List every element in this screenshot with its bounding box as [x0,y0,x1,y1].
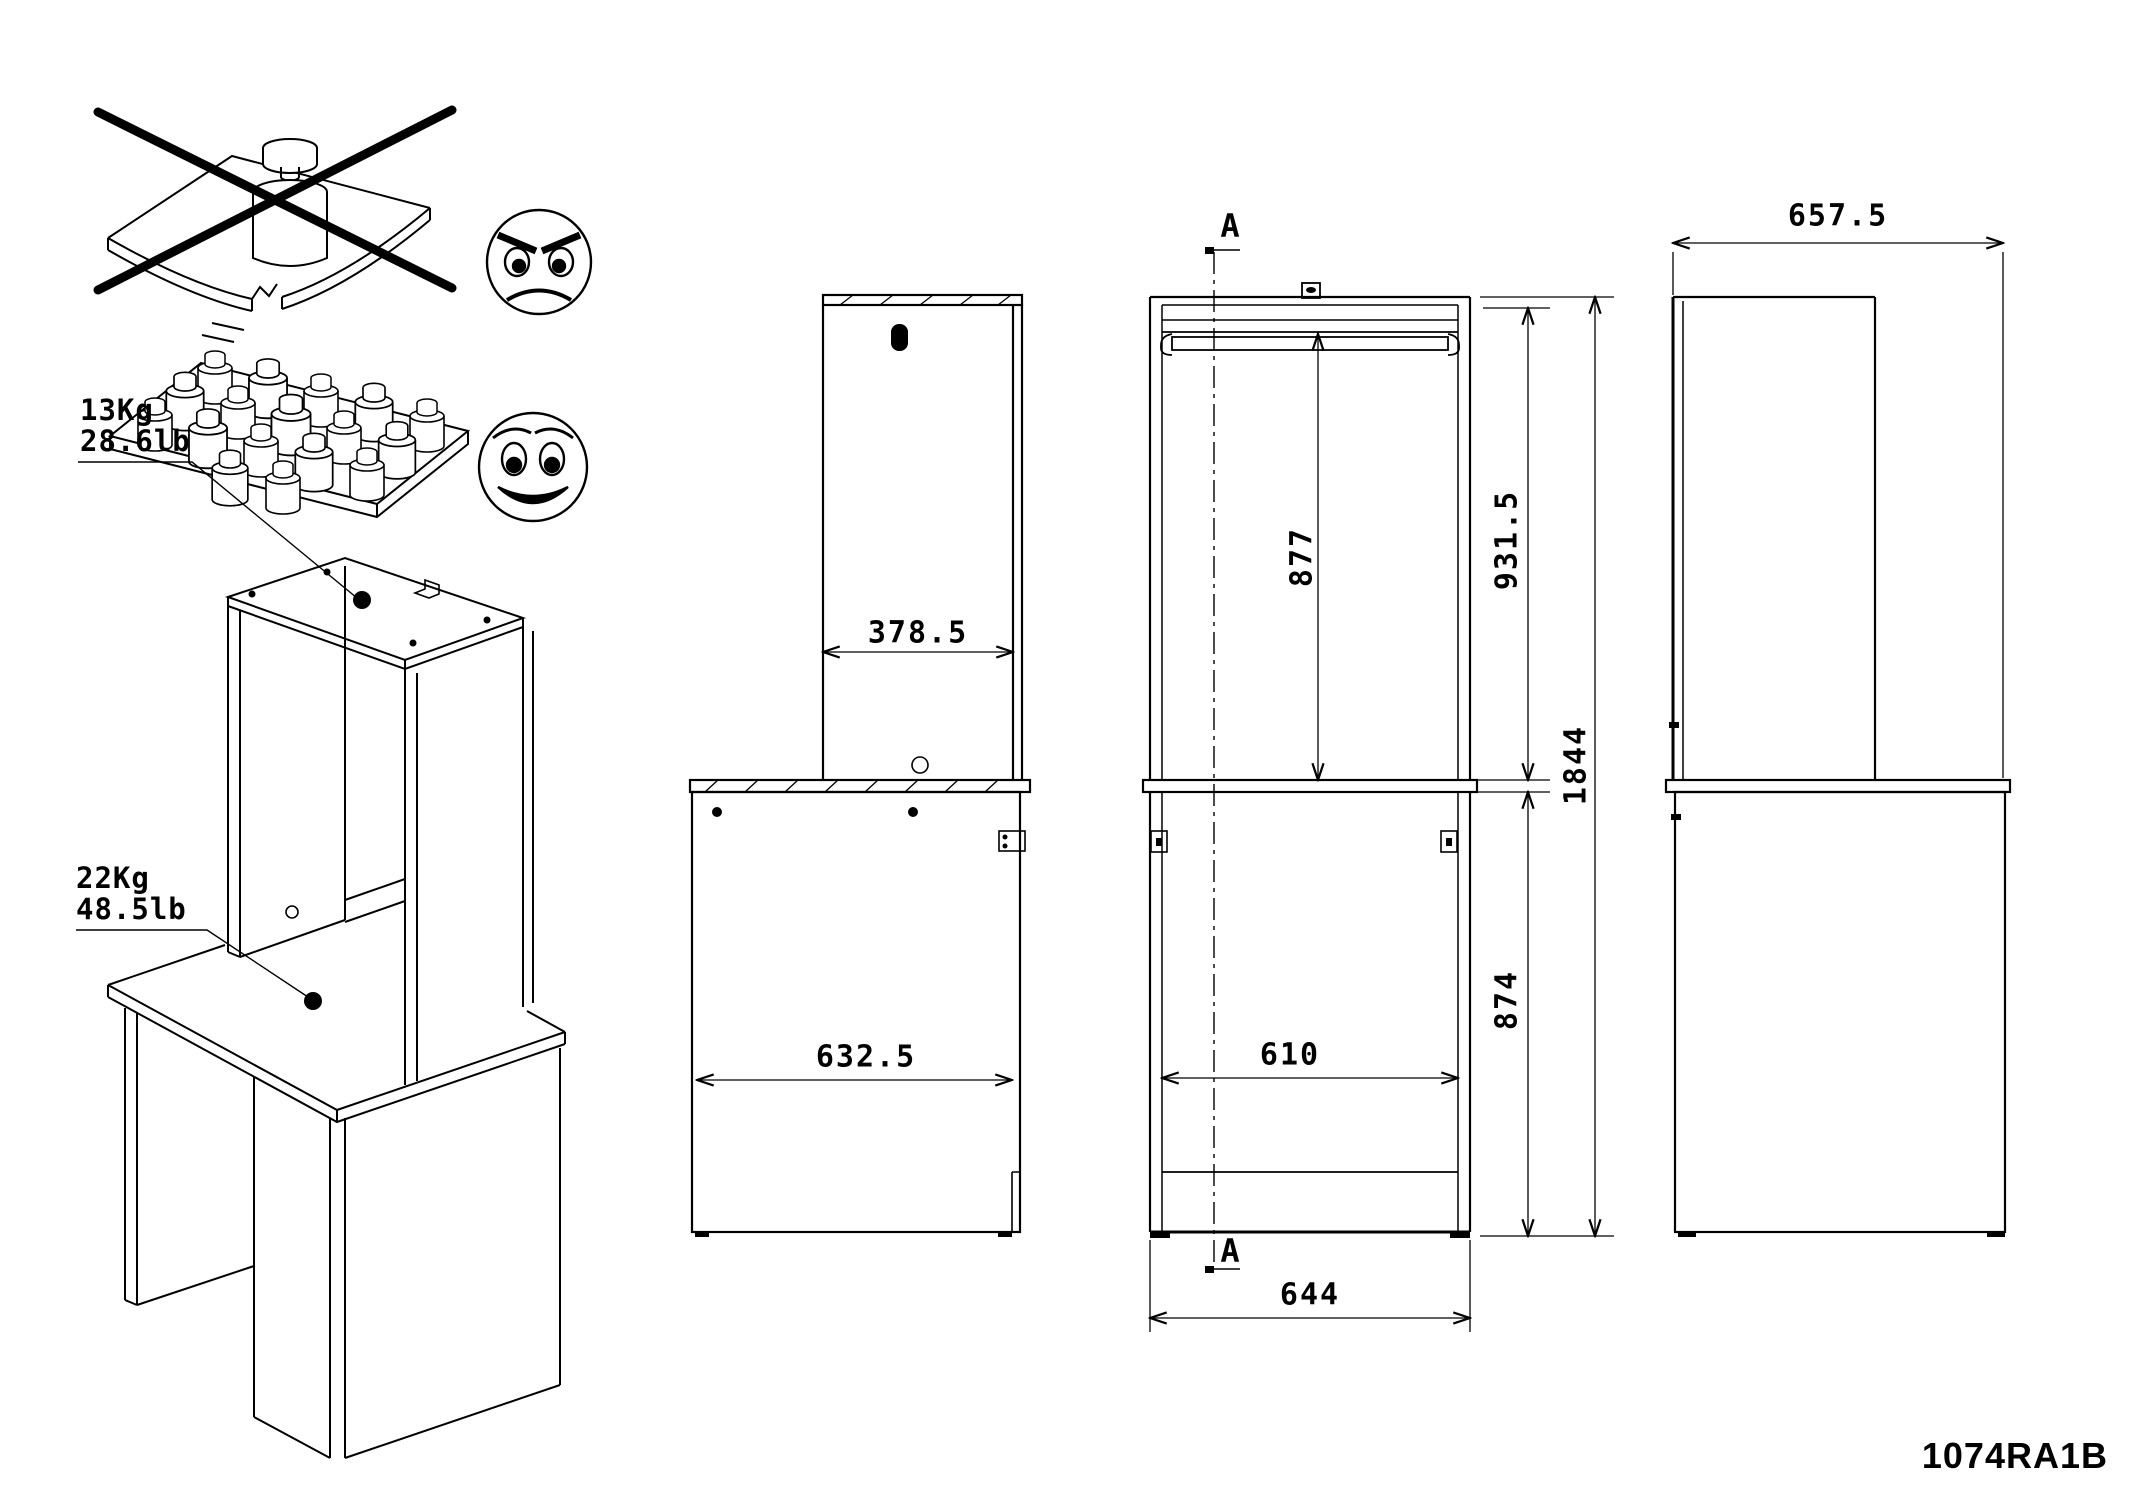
hanging-slot [891,324,908,351]
dim-outer-width: 644 [1280,1278,1340,1313]
side-section-dims [697,652,1013,1080]
isometric-view [108,558,565,1458]
smiley-face-icon [479,413,587,521]
dim-desk-side-depth: 632.5 [816,1040,916,1075]
dim-desk-to-floor: 874 [1490,970,1525,1030]
dim-inner-width: 610 [1260,1038,1320,1073]
dim-desk-top-depth: 657.5 [1788,199,1888,234]
hutch-load-kg-label: 13Kg [80,393,154,427]
section-line-A [1205,247,1240,1273]
right-side-dims [1673,243,2003,778]
hutch-load-lb-label: 28.6lb [80,424,191,458]
grommet-hole [286,906,298,918]
technical-drawing-page: 13Kg 28.6lb 22Kg 48.5lb 378.5 632.5 A A … [0,0,2134,1509]
part-number: 1074RA1B [1922,1435,2108,1477]
cam-fittings [1151,831,1457,852]
desk-load-lb-label: 48.5lb [76,892,187,926]
desk-load-point [304,992,322,1010]
right-side-view [1666,297,2010,1237]
front-view-dims [1150,297,1614,1332]
wall-clip [1302,283,1320,298]
section-marker-bottom: A [1220,1232,1239,1270]
front-view [1143,283,1477,1238]
dim-total-height: 1844 [1559,725,1594,805]
warning-bad-figure [98,110,452,342]
dim-hutch-depth: 378.5 [868,616,968,651]
side-section-view [690,295,1030,1237]
desk-load-kg-label: 22Kg [76,861,150,895]
hutch-load-point [353,591,371,609]
angry-face-icon [487,210,591,314]
section-marker-top: A [1220,207,1239,245]
dim-hutch-height: 931.5 [1490,490,1525,590]
dim-rail-to-desk: 877 [1285,527,1320,587]
